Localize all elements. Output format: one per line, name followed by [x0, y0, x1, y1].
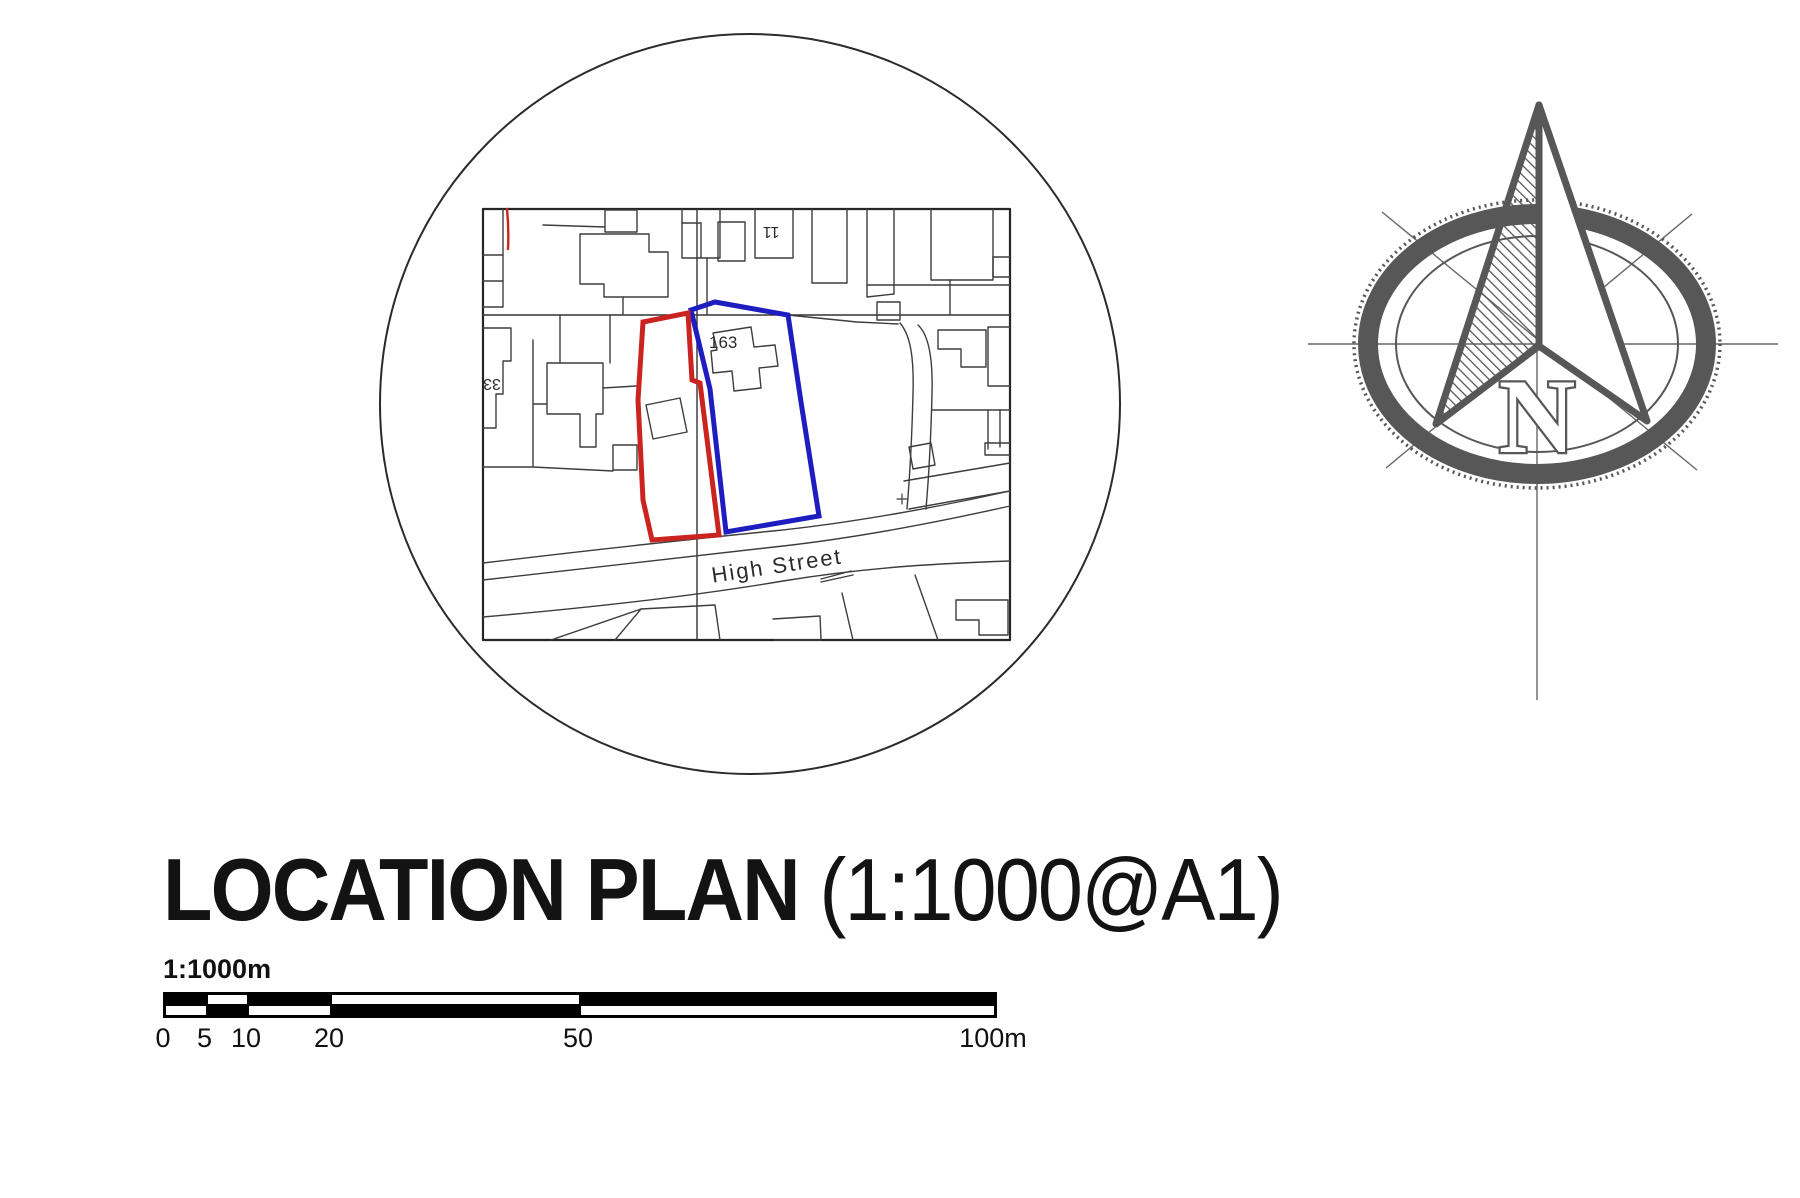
building-outline	[613, 445, 637, 470]
scale-tick: 50	[563, 1023, 593, 1054]
building-outline	[931, 209, 993, 280]
scale-segment	[207, 994, 249, 1005]
building-outline	[646, 398, 687, 439]
title-main: LOCATION PLAN	[163, 840, 799, 939]
scale-tick: 100m	[959, 1023, 1027, 1054]
scale-segment	[331, 1005, 580, 1016]
building-outline	[867, 209, 894, 297]
building-outline	[988, 327, 1010, 386]
building-outline	[773, 616, 821, 640]
north-arrow: N	[1308, 105, 1778, 700]
building-outline	[938, 330, 986, 367]
north-letter: N	[1499, 358, 1576, 475]
building-outline	[812, 209, 847, 283]
scale-tick-labels: 0 5 10 20 50 100m	[163, 1023, 993, 1057]
plot-number-label: 163	[709, 333, 737, 352]
scale-tick: 0	[155, 1023, 170, 1054]
boundary-line	[483, 467, 613, 471]
boundary-line	[915, 575, 938, 640]
building-outline	[956, 600, 1008, 635]
house-number-11-label: 11	[763, 223, 780, 240]
scale-ratio-label: 1:1000m	[163, 954, 993, 985]
map-extract: 163 33 11 High Street	[380, 34, 1120, 774]
building-outline	[543, 225, 605, 227]
scale-segment	[580, 994, 995, 1005]
scale-bar: 1:1000m 0 5 10 20 50 100m	[163, 954, 993, 1057]
scale-segment	[580, 1005, 995, 1016]
scale-tick: 10	[231, 1023, 261, 1054]
scale-bar-top-row	[165, 994, 995, 1005]
title-scale-suffix: (1:1000@A1)	[799, 840, 1282, 939]
footpath-line	[918, 325, 932, 509]
road-lines	[483, 491, 1010, 617]
scale-segment	[165, 1005, 207, 1016]
survey-cross	[897, 494, 907, 504]
building-outline	[985, 443, 1010, 455]
building-outline	[909, 443, 935, 469]
house-number-33-label: 33	[483, 375, 501, 392]
location-plan-sheet: 163 33 11 High Street N LOCA	[0, 0, 1800, 1198]
scale-segment	[248, 1005, 331, 1016]
building-outline	[580, 234, 668, 297]
building-outline	[615, 605, 720, 640]
scale-segment	[207, 1005, 249, 1016]
red-line-fragment	[507, 209, 508, 249]
building-outline	[605, 210, 637, 232]
page-title: LOCATION PLAN (1:1000@A1)	[163, 846, 1282, 934]
building-outline	[718, 222, 745, 261]
boundary-line	[603, 386, 636, 388]
scale-segment	[248, 994, 331, 1005]
scale-bar-bottom-row	[165, 1005, 995, 1016]
boundary-line	[842, 593, 853, 640]
scale-segment	[331, 994, 580, 1005]
building-outline	[877, 302, 900, 320]
building-outline	[547, 363, 603, 447]
scale-segment	[165, 994, 207, 1005]
scale-bar-graphic	[163, 992, 997, 1018]
scale-tick: 5	[197, 1023, 212, 1054]
scale-tick: 20	[314, 1023, 344, 1054]
building-outline	[993, 257, 1010, 277]
